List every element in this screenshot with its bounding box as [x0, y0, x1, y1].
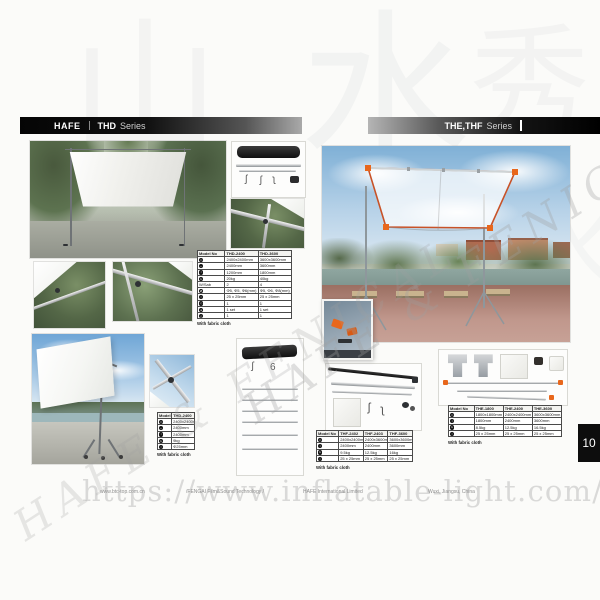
frame-tube: [332, 390, 412, 395]
stand-right: [184, 148, 186, 246]
hook-icon: ʅ: [273, 175, 275, 185]
stand-foot-left: [63, 244, 68, 246]
frame-size-icon: □: [450, 413, 454, 417]
frame-tube: [121, 262, 140, 321]
fabric-note: With fabric cloth: [448, 440, 482, 445]
spec-cell: 25 x 25mm: [363, 455, 388, 461]
photo-thd-park: [30, 141, 226, 258]
profile-icon: ○: [318, 457, 322, 461]
header-separator: [89, 121, 90, 130]
url-watermark: https://www.inflatable-light.com/: [82, 474, 600, 508]
header-the-thf-series: THE,THF Series: [368, 117, 600, 134]
fabric-note: With fabric cloth: [197, 321, 231, 326]
spec-cell: 25 x 25mm: [474, 430, 503, 436]
spec-icon-cell: ○: [449, 430, 475, 436]
spec-header-cell: Model No: [317, 431, 339, 437]
page-number: 10: [578, 424, 600, 462]
header-tick: [520, 120, 522, 131]
spec-icon-cell: △: [198, 313, 225, 319]
height-icon: ↕: [318, 444, 322, 448]
spec-cell: 1: [225, 313, 258, 319]
spec-icon-cell: ○: [317, 455, 339, 461]
corner-joint: [55, 288, 60, 293]
spec-cell: 3600x3600mm: [532, 412, 561, 418]
clamp-part: [410, 406, 415, 411]
spec-table: Model NoTHD-2400THD-3600□2400x2400mm3600…: [197, 250, 292, 319]
orange-corner: [443, 380, 448, 385]
yoke-bracket: [474, 354, 493, 377]
spec-cell: Φ5, Φ6, Φ8(mm): [258, 288, 291, 294]
weight-icon: k: [318, 450, 322, 454]
spec-table: Model NoTHE-1800THE-2400THE-3600□1800x18…: [448, 405, 562, 437]
fabric-note: With fabric cloth: [316, 465, 350, 470]
corner-elbow: [412, 377, 418, 383]
height-icon: ↕: [450, 419, 454, 423]
the-thf-series-suffix: Series: [486, 121, 512, 131]
profile-icon: ○: [199, 295, 203, 299]
thf-spec-table: Model NoTHF-2402THF-2403THF-3600□2400x24…: [316, 430, 413, 462]
folded-cloth: [333, 398, 362, 426]
the-thf-series-label: THE,THF: [444, 121, 482, 131]
spec-cell: 3600x3600mm: [388, 437, 413, 443]
carry-bag: [237, 146, 300, 158]
hook-icon: ʅ: [381, 404, 384, 414]
profile-icon: ○: [450, 432, 454, 436]
hook-icon: ʃ: [245, 175, 247, 185]
width-icon: ↔: [199, 264, 203, 268]
clamp-knob: [135, 281, 141, 287]
kit-panel-thd: ʃ ʃ ʅ: [231, 141, 306, 198]
glove: [549, 356, 564, 371]
spec-cell: 25 x 25mm: [532, 430, 561, 436]
thd-series-label: THD: [98, 121, 117, 131]
photo-frame-corner-1: [34, 262, 105, 328]
folded-cloth: [500, 354, 528, 379]
frame-tube: [239, 170, 296, 172]
logo-patch: [290, 176, 299, 183]
scrim-edge: [168, 262, 192, 280]
spec-cell: 25 x 25mm: [388, 455, 413, 461]
orange-corner: [558, 380, 563, 385]
brand-label: HAFE: [54, 121, 81, 131]
frame-tube: [242, 434, 297, 436]
frame-size-icon: □: [199, 258, 203, 262]
frame-tube: [447, 382, 560, 385]
spec-cell: 2400x2400mm: [503, 412, 532, 418]
frame-tube: [242, 448, 297, 450]
spec-cell: 2400x3600mm: [363, 437, 388, 443]
hook-icon: ʃ: [368, 402, 371, 412]
clamp-knob: [263, 219, 268, 224]
spec-cell: 25 x 25mm: [503, 430, 532, 436]
stand-tube: [262, 204, 271, 248]
spec-cell: 1: [258, 313, 291, 319]
spec-table: Model NoTHF-2402THF-2403THF-3600□2400x24…: [316, 430, 413, 462]
stand-left: [70, 148, 72, 246]
hook-icon: ʃ: [260, 176, 262, 186]
spec-cell: 1800x1800mm: [474, 412, 503, 418]
frame-tube: [236, 164, 300, 167]
weight-icon: k: [450, 425, 454, 429]
thd-spec-table: Model NoTHD-2400THD-3600□2400x2400mm3600…: [197, 250, 292, 319]
frame-size-icon: □: [318, 438, 322, 442]
frame-tube: [457, 390, 547, 392]
orange-elbow: [549, 395, 554, 400]
cloth-icon: ●: [199, 308, 203, 312]
frame-tube: [467, 395, 546, 400]
small-parts: [534, 357, 543, 365]
lake: [32, 413, 144, 422]
kit-panel-the: [438, 349, 568, 406]
header-thd-series: HAFE THD Series: [20, 117, 302, 134]
hook-icon: △: [199, 314, 203, 318]
bag-icon: ◇: [199, 301, 203, 305]
scrim-corner: [271, 199, 304, 219]
height-icon: ↕: [199, 270, 203, 274]
catalog-page: 水 山 秀 水 HAFE THD Series THE,THF Series ʃ…: [0, 0, 600, 600]
spec-cell: Φ5, Φ5, Φ6(mm): [225, 288, 258, 294]
thd-series-suffix: Series: [120, 121, 146, 131]
scrim-cloth: [67, 152, 189, 207]
frame-tube: [331, 382, 415, 389]
spec-cell: 2400x2400mm: [339, 437, 364, 443]
stand-foot-right: [179, 244, 184, 246]
chinese-watermark: 秀: [470, 0, 590, 159]
frame-crossbar: [65, 149, 190, 150]
tube-diameter-icon: Ø: [199, 289, 203, 293]
weight-icon: k: [199, 277, 203, 281]
the-spec-table: Model NoTHE-1800THE-2400THE-3600□1800x18…: [448, 405, 562, 437]
clamp-part: [402, 402, 409, 408]
spec-cell: 25 x 25mm: [339, 455, 364, 461]
yoke-bracket: [448, 354, 467, 377]
photo-frame-corner-2: [113, 262, 192, 321]
photo-corner-detail: [231, 199, 304, 248]
